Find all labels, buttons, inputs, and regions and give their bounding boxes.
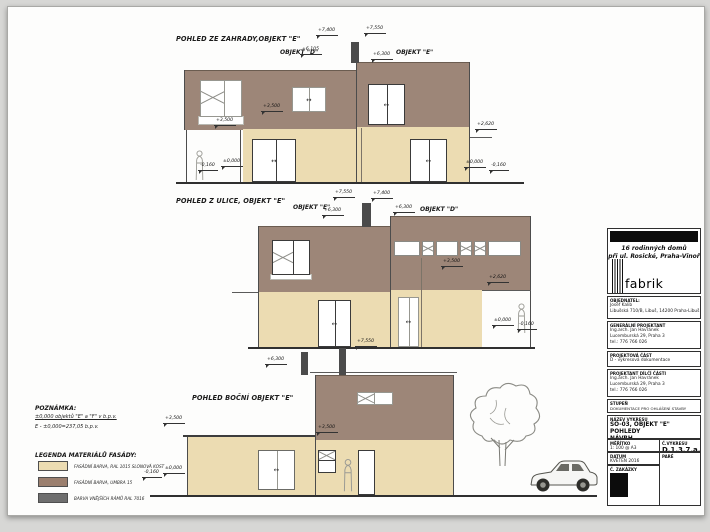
drawing-name-line: POHLEDY xyxy=(610,429,698,436)
scale-value: 1: 100 @ A3 xyxy=(610,446,657,452)
downpipe xyxy=(421,258,422,347)
person-figure xyxy=(342,458,354,498)
cell-label: Č. ZAKÁZKY xyxy=(610,467,657,472)
canopy-line xyxy=(470,137,492,138)
titleblock-row-stupen: STUPEŇ DOKUMENTACE PRO OHLÁŠENÍ STAVBY xyxy=(607,399,701,413)
window-mullion xyxy=(387,85,388,124)
elevation-mark: +7,550 xyxy=(355,340,377,347)
parapet-line xyxy=(310,372,457,373)
drawing-title-street: POHLED Z ULICE, OBJEKT "E" xyxy=(176,197,285,205)
legend-label: FASÁDNÍ BARVA, UMBRA 15 xyxy=(74,480,132,485)
elevation-mark: +3,500 xyxy=(316,426,338,433)
window xyxy=(368,84,405,125)
elevation-mark: +2,620 xyxy=(487,276,509,283)
window-mullion xyxy=(224,81,225,116)
elevation-mark: -0,160 xyxy=(517,323,537,330)
elevation-mark: ±0,000 xyxy=(221,160,243,167)
chimney xyxy=(362,203,371,227)
elevation-mark: +3,500 xyxy=(261,105,283,112)
ribbon-window-band xyxy=(394,241,521,256)
drawing-name-line: SO-03, OBJEKT "E" xyxy=(610,422,698,429)
door xyxy=(358,450,375,495)
order-number-black-box xyxy=(610,473,628,497)
row-line: tel.: 776 766 026 xyxy=(610,340,698,346)
elevation-mark: ±0,000 xyxy=(464,161,486,168)
ground-line xyxy=(176,182,524,184)
titleblock-cell-zakazka: Č. ZAKÁZKY xyxy=(607,465,660,506)
legend-heading: LEGENDA MATERIÁLŮ FASÁDY: xyxy=(35,452,137,459)
architectural-sheet-view: POHLED ZE ZAHRADY,OBJEKT "E" OBJEKT "D" … xyxy=(0,0,710,532)
row-line: DOKUMENTACE PRO OHLÁŠENÍ STAVBY xyxy=(610,406,698,411)
canopy-line xyxy=(232,292,258,293)
elevation-mark: +6,300 xyxy=(371,53,393,60)
casement-symbol xyxy=(460,241,472,256)
facade-wall-cream xyxy=(187,437,315,495)
fabrik-logo-text: fabrik xyxy=(625,276,663,291)
titleblock-row-projektova-cast: PROJEKTOVÁ ČÁST D - výkresová dokumentac… xyxy=(607,351,701,367)
date-value: KVĚTEN 2016 xyxy=(610,459,657,465)
edge-line xyxy=(390,216,391,347)
chimney xyxy=(301,352,308,375)
project-title-line1: 16 rodinných domů xyxy=(608,245,700,253)
ground-line xyxy=(248,347,535,349)
sliding-door xyxy=(318,300,351,347)
elevation-mark: +6,300 xyxy=(322,209,344,216)
window xyxy=(318,450,336,473)
elevation-mark: +7,550 xyxy=(333,191,355,198)
sliding-door xyxy=(258,450,295,490)
elevation-mark: +7,400 xyxy=(316,29,338,36)
elevation-mark: +6,300 xyxy=(393,206,415,213)
elevation-mark: -0,160 xyxy=(142,471,162,478)
titleblock-row-objednatel: OBJEDNATEL: Josef Kalib Libušská 710/B, … xyxy=(607,296,701,319)
header-black-bar xyxy=(610,231,698,242)
drawing-title-garden: POHLED ZE ZAHRADY,OBJEKT "E" xyxy=(176,35,300,43)
notes-line: E - ±0,000=237,05 b.p.v. xyxy=(35,424,99,430)
casement-symbol xyxy=(273,241,293,274)
door-mullion xyxy=(429,140,430,181)
casement-symbol xyxy=(474,241,486,256)
window-mullion xyxy=(293,241,294,274)
legend-swatch-gray xyxy=(38,493,68,503)
window-pane xyxy=(394,241,420,256)
titleblock-cell-pare: PARÉ xyxy=(659,452,701,506)
door-mullion xyxy=(409,298,410,346)
object-label-e: OBJEKT "E" xyxy=(396,49,433,56)
window-pane xyxy=(488,241,521,256)
legend-swatch-brown xyxy=(38,477,68,487)
door xyxy=(398,297,419,347)
elevation-mark: +7,550 xyxy=(364,27,386,34)
row-line: Libušská 710/B, Libuš, 14200 Praha-Libuš xyxy=(610,309,698,315)
edge-line xyxy=(315,375,316,495)
elevation-mark: ±0,000 xyxy=(163,467,185,474)
window-mullion xyxy=(374,393,375,404)
window-mullion xyxy=(309,88,310,111)
car-figure xyxy=(525,452,600,502)
titleblock-cell-cislo-vykresu: Č.VÝKRESU D.1.3.7.a. xyxy=(659,439,701,452)
elevation-mark: +3,500 xyxy=(163,417,185,424)
elevation-mark: +7,400 xyxy=(371,192,393,199)
window xyxy=(272,240,310,275)
legend-label: BARVA VNĚJŠÍCH RÁMŮ RAL 7016 xyxy=(74,496,144,501)
casement-symbol xyxy=(201,81,224,116)
legend-item: FASÁDNÍ BARVA, RAL 1015 SLONOVÁ KOST xyxy=(38,461,164,471)
chimney xyxy=(339,348,346,375)
notes-heading: POZNÁMKA: xyxy=(35,405,76,412)
sliding-door xyxy=(252,139,296,182)
fabrik-logo-bars xyxy=(612,259,623,293)
elevation-mark: -0,160 xyxy=(198,164,218,171)
edge-line xyxy=(187,437,188,495)
legend-item: FASÁDNÍ BARVA, UMBRA 15 xyxy=(38,477,132,487)
casement-symbol xyxy=(319,451,335,461)
edge-line xyxy=(453,375,454,495)
row-line: tel.: 776 766 026 xyxy=(610,388,698,394)
object-label-d: OBJEKT "D" xyxy=(420,206,458,213)
titleblock-cell-meritko: MĚŘÍTKO 1: 100 @ A3 xyxy=(607,439,660,452)
elevation-mark: +6,300 xyxy=(265,358,287,365)
titleblock-row-nazev-vykresu: NÁZEV VÝKRESU SO-03, OBJEKT "E" POHLEDY … xyxy=(607,415,701,439)
elevation-mark: -0,160 xyxy=(489,164,509,171)
row-line: D - výkresová dokumentace xyxy=(610,358,698,364)
door-mullion xyxy=(276,140,277,181)
window-pane xyxy=(436,241,458,256)
legend-swatch-cream xyxy=(38,461,68,471)
cell-label: PARÉ xyxy=(662,454,698,459)
casement-symbol xyxy=(358,393,374,404)
elevation-mark: +2,620 xyxy=(475,123,497,130)
edge-line xyxy=(184,70,185,130)
elevation-mark: +3,500 xyxy=(214,119,236,126)
sliding-door xyxy=(410,139,447,182)
carport-post xyxy=(240,130,241,182)
legend-label: FASÁDNÍ BARVA, RAL 1015 SLONOVÁ KOST xyxy=(74,464,164,469)
window xyxy=(292,87,326,112)
elevation-mark: +6,105 xyxy=(300,48,322,55)
window xyxy=(357,392,393,405)
edge-line xyxy=(258,226,259,347)
title-block-header: 16 rodinných domů při ul. Rosické, Praha… xyxy=(607,228,701,294)
door-mullion xyxy=(277,451,278,489)
edge-line xyxy=(356,62,357,182)
titleblock-row-projektant-dilci: PROJEKTANT DÍLČÍ ČÁSTI Ing.arch. Jan Hav… xyxy=(607,369,701,397)
titleblock-cell-datum: DATUM KVĚTEN 2016 xyxy=(607,452,660,465)
elevation-mark: +3,500 xyxy=(441,260,463,267)
door-mullion xyxy=(335,301,336,346)
title-block: 16 rodinných domů při ul. Rosické, Praha… xyxy=(607,228,701,506)
carport-post xyxy=(186,130,187,182)
person-figure xyxy=(516,303,527,339)
elevation-mark: ±0,000 xyxy=(492,319,514,326)
roof-line xyxy=(183,435,315,437)
titleblock-row-generalni-projektant: GENERÁLNÍ PROJEKTANT Ing.arch. Jan Havrá… xyxy=(607,321,701,349)
window xyxy=(200,80,242,117)
notes-line: ±0,000 objektů "E" a "F" v b.p.v. xyxy=(35,414,117,420)
legend-item: BARVA VNĚJŠÍCH RÁMŮ RAL 7016 xyxy=(38,493,144,503)
project-title: 16 rodinných domů při ul. Rosické, Praha… xyxy=(608,245,700,260)
casement-symbol xyxy=(422,241,434,256)
chimney xyxy=(351,42,359,63)
downpipe xyxy=(361,128,362,182)
canopy-line xyxy=(482,290,531,291)
drawing-title-side: POHLED BOČNÍ OBJEKT "E" xyxy=(192,394,293,402)
